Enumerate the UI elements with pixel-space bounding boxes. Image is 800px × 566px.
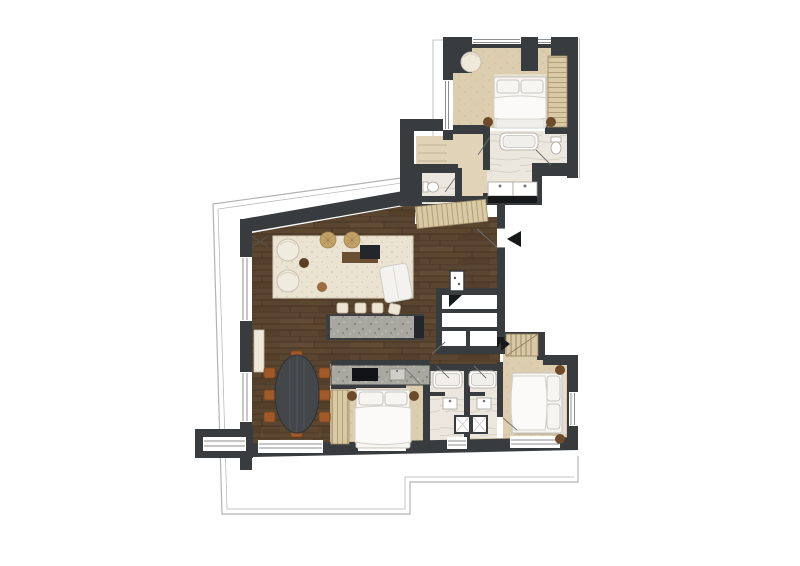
sideboard (254, 330, 264, 372)
toilet-wc (423, 182, 439, 192)
bathtub-a (433, 371, 462, 388)
entry-door-gap (497, 228, 505, 248)
wall-post-b (521, 37, 538, 71)
wall-bath-stub-a (430, 392, 445, 396)
bed-right (511, 372, 566, 434)
window-south-c (447, 437, 467, 449)
bathtub-b (469, 371, 496, 388)
double-sink-ensuite (488, 182, 537, 203)
wall-closet-div2 (442, 327, 497, 331)
bathtub-ensuite (500, 133, 538, 150)
sofa (379, 263, 413, 303)
wardrobe-bedroom-top (548, 56, 567, 127)
bed-top (494, 74, 546, 128)
toilet-ensuite (551, 137, 561, 154)
wall-closets-west (436, 288, 442, 352)
side-table-rust (317, 282, 327, 292)
side-table-dark (299, 258, 309, 268)
technical-shaft (450, 271, 464, 291)
shower-stall-b (472, 416, 487, 433)
window-bedroom-top-west (443, 80, 453, 130)
window-top-b (538, 37, 551, 44)
kitchen-island (326, 314, 424, 340)
wall-closets-south (436, 346, 505, 354)
cooktop (352, 368, 378, 381)
lounge-chair-1 (277, 239, 299, 261)
wall-wc-east (455, 168, 462, 196)
window-west-a (240, 257, 252, 321)
wall-kitchen-back (331, 360, 430, 365)
bed-left (355, 388, 411, 448)
window-top-a (472, 37, 521, 44)
wardrobe-bedroom-left (331, 390, 349, 444)
kitchen-counter (331, 365, 430, 385)
lounge-chair-2 (277, 270, 299, 292)
window-southwest-block (203, 437, 246, 451)
wall-entry-north (497, 204, 505, 228)
entry-arrow-icon (507, 231, 521, 247)
wall-closet-div3 (466, 331, 470, 348)
window-south-a (258, 440, 323, 453)
armchair-bedroom-top (461, 52, 481, 72)
shower-stall-a (455, 416, 470, 433)
floor-plan-svg (0, 0, 800, 566)
window-bedroom-right-east (569, 392, 578, 426)
wall-bedroom-top-east (567, 37, 578, 178)
wall-ensuite-west (483, 128, 490, 170)
wall-entry-south (497, 248, 505, 292)
wall-bath-stub-b (470, 392, 485, 396)
sink-a (443, 398, 457, 409)
wall-closets-north (436, 288, 505, 295)
window-west-b (240, 372, 252, 422)
sink-b (477, 398, 491, 409)
window-south-d (510, 436, 560, 448)
floor-plan-image (0, 0, 800, 566)
wall-closet-div1 (442, 309, 497, 313)
staircase (506, 334, 538, 356)
vanity-counter-dark (488, 196, 537, 203)
living-room (252, 232, 413, 303)
